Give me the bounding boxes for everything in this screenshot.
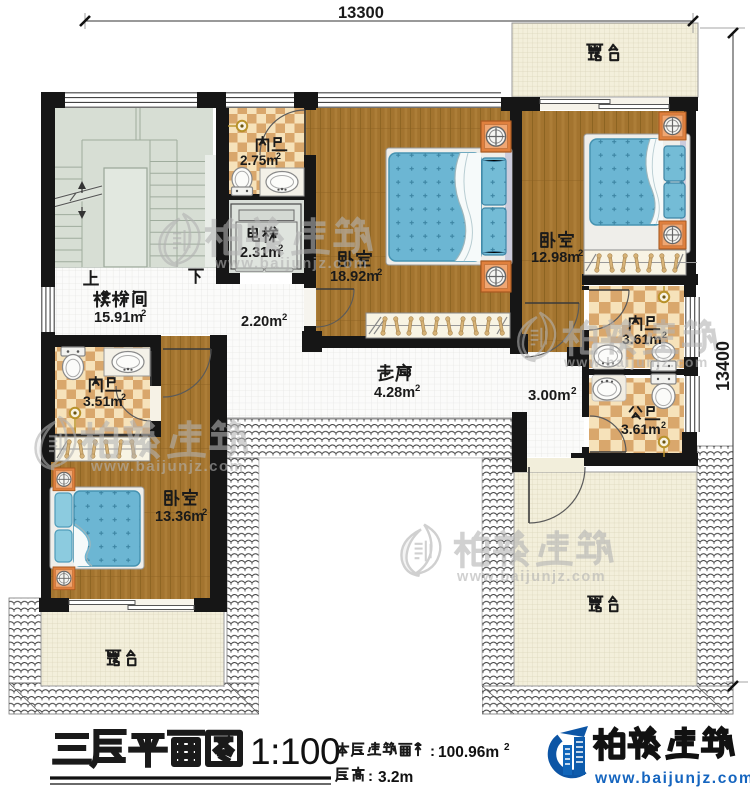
svg-text:www.baijunjz.com: www.baijunjz.com — [594, 770, 750, 787]
svg-text:2: 2 — [141, 308, 146, 319]
svg-text:2.75m: 2.75m — [240, 153, 278, 168]
svg-text:2: 2 — [377, 267, 382, 278]
svg-text:13.36m: 13.36m — [155, 509, 204, 525]
svg-text:2.20m: 2.20m — [241, 314, 282, 330]
svg-text:www.baijunjz.com: www.baijunjz.com — [563, 354, 709, 370]
svg-text:1:100: 1:100 — [250, 731, 340, 772]
svg-text:3.61m: 3.61m — [621, 421, 661, 437]
svg-text:13400: 13400 — [713, 341, 733, 391]
svg-text:15.91m: 15.91m — [94, 310, 143, 326]
svg-text:2: 2 — [504, 742, 510, 753]
svg-text:3.00m: 3.00m — [528, 387, 571, 404]
svg-text:2: 2 — [415, 383, 420, 394]
svg-text:13300: 13300 — [338, 4, 384, 22]
svg-text:2: 2 — [282, 312, 287, 323]
svg-text:3.51m: 3.51m — [83, 393, 123, 409]
svg-text:2: 2 — [661, 420, 666, 430]
svg-text:2: 2 — [276, 151, 281, 161]
svg-text:3.2m: 3.2m — [378, 769, 413, 786]
svg-text:2: 2 — [571, 386, 577, 397]
svg-text::: : — [368, 768, 373, 785]
svg-text:4.28m: 4.28m — [374, 385, 415, 401]
svg-text:12.98m: 12.98m — [531, 250, 580, 266]
svg-text:2: 2 — [202, 507, 207, 518]
svg-text:www.baijunjz.com: www.baijunjz.com — [90, 458, 244, 475]
svg-text:www.baijunjz.com: www.baijunjz.com — [456, 569, 606, 585]
svg-text:100.96m: 100.96m — [438, 744, 499, 761]
svg-text:2: 2 — [578, 248, 583, 259]
svg-text:2: 2 — [121, 392, 126, 402]
svg-text::: : — [430, 743, 435, 760]
svg-text:www.baijunjz.com: www.baijunjz.com — [214, 255, 368, 272]
